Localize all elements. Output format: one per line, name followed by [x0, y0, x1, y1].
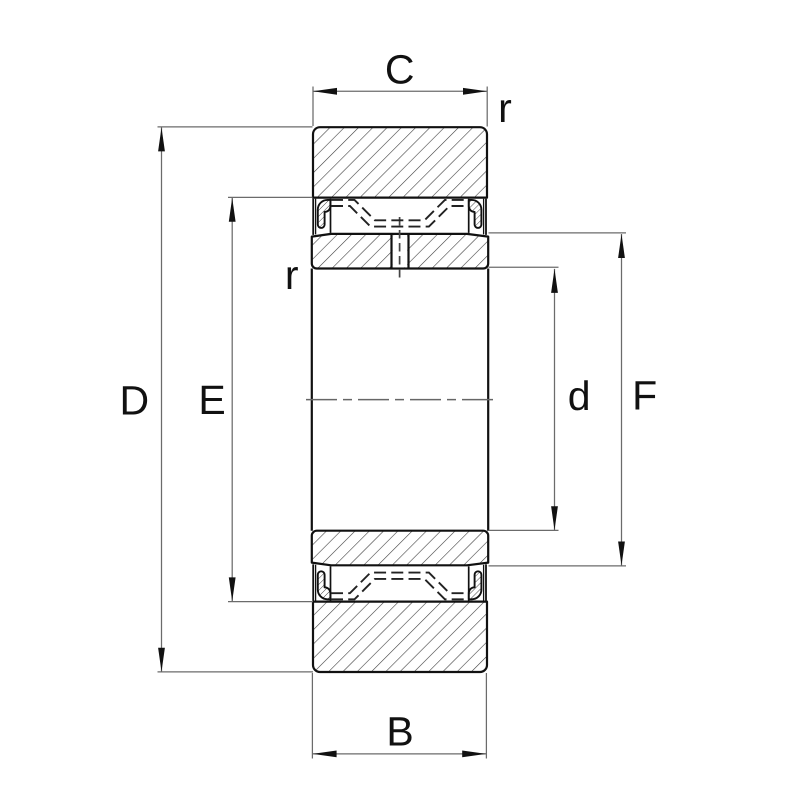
svg-text:B: B	[386, 709, 413, 755]
svg-text:r: r	[498, 85, 512, 131]
svg-text:F: F	[632, 373, 657, 419]
svg-text:r: r	[285, 252, 299, 298]
svg-text:C: C	[385, 46, 415, 92]
svg-text:D: D	[119, 378, 149, 424]
svg-text:E: E	[198, 377, 225, 423]
svg-text:d: d	[568, 373, 591, 419]
